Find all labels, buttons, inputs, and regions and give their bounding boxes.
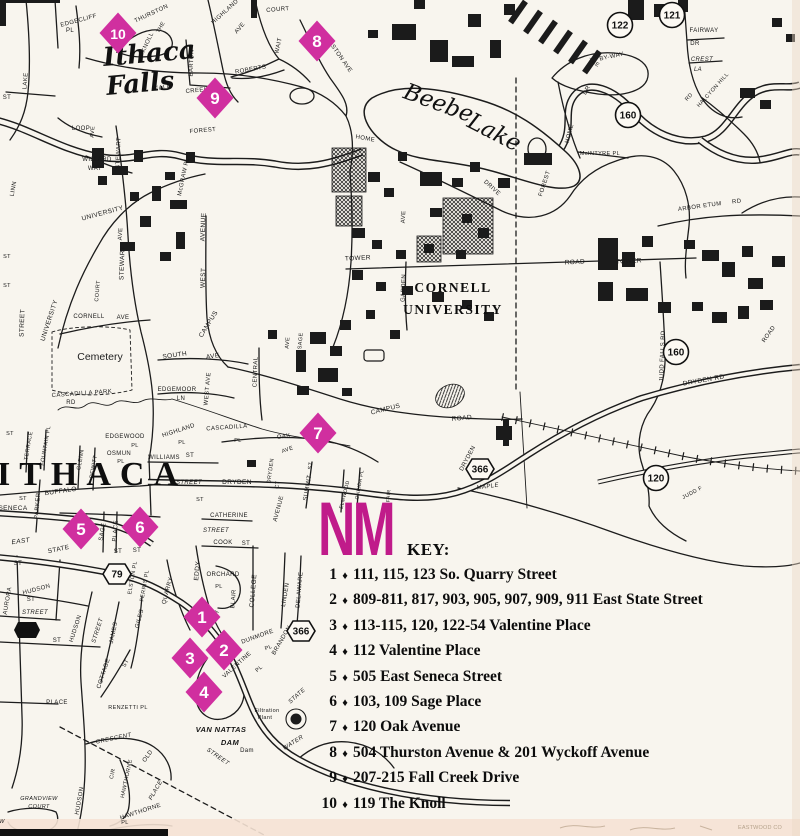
route-number: 366 <box>293 627 310 638</box>
street-label: ROAD <box>451 414 472 423</box>
street-label: PL <box>234 438 242 444</box>
route-number: 120 <box>648 474 665 485</box>
map-marker-3: 3 <box>172 638 209 679</box>
street-label: LINN <box>10 181 19 197</box>
street-label: ST <box>242 541 250 547</box>
street-label: VAN NATTAS <box>196 725 247 734</box>
street-label: CT <box>274 480 281 489</box>
marker-number: 3 <box>185 649 194 668</box>
street-label: AURORA <box>3 586 14 615</box>
street-label: AVE <box>118 227 124 240</box>
street-label: COURT <box>28 804 50 810</box>
street-label: CASCADILLA <box>206 424 248 433</box>
street-label: JUDD F <box>681 485 703 501</box>
street-label: DAM <box>221 738 240 747</box>
street-label: HOME <box>355 134 375 143</box>
street-label: LN <box>177 396 185 402</box>
place-labels-layer: IthacaFallsBeebeLakeCORNELLUNIVERSITYITH… <box>0 35 525 493</box>
street-label: TOWER <box>616 257 642 265</box>
scan-black-bar <box>0 829 168 836</box>
street-label: WAY <box>88 166 102 172</box>
street-label: STREET <box>203 528 230 534</box>
street-label: CIR <box>109 768 117 780</box>
street-label: CREST <box>691 57 714 63</box>
street-label: ST <box>6 431 14 437</box>
route-number: 121 <box>664 11 681 22</box>
street-label: AVENUE <box>273 495 286 522</box>
street-label: PLACE <box>148 779 164 801</box>
street-label: ST <box>186 453 194 459</box>
map-marker-4: 4 <box>186 672 223 713</box>
street-label: COLLEGE <box>249 574 259 608</box>
street-label: AVENUE <box>200 212 208 241</box>
street-label: COURT <box>94 280 102 302</box>
street-label: CORNELL <box>73 314 104 320</box>
route-shield: 160 <box>664 340 689 365</box>
street-label: GILES <box>135 608 146 629</box>
street-label: CAMPUS <box>370 402 401 416</box>
marker-number: 1 <box>197 608 206 627</box>
marker-number: 6 <box>135 518 144 537</box>
street-label: ST <box>196 497 204 503</box>
street-label: PL <box>66 28 74 34</box>
street-label: EDGEWOOD <box>105 434 145 440</box>
street-label: HIGHLAND <box>211 0 241 26</box>
street-label: RD <box>684 92 694 103</box>
street-label: PLACE <box>46 700 68 706</box>
street-label: AVE <box>90 126 97 138</box>
marker-number: 5 <box>76 520 85 539</box>
street-label: ROAD <box>565 258 586 266</box>
street-label: AVE <box>234 22 247 36</box>
street-label: ST <box>19 496 27 502</box>
map-marker-9: 9 <box>197 78 234 119</box>
route-shield: 79 <box>103 564 131 584</box>
street-label: GARDEN <box>401 274 408 302</box>
street-label: SENECA <box>0 505 28 512</box>
route-number: 122 <box>612 21 629 32</box>
street-label: STATE <box>288 687 308 706</box>
street-label: CRESCENT <box>95 732 133 746</box>
street-label: SAGE <box>297 332 304 349</box>
street-label: AVE <box>285 337 292 349</box>
marker-number: 8 <box>312 32 321 51</box>
street-label: OLD <box>142 749 155 764</box>
route-shield: 122 <box>608 13 633 38</box>
street-label: AVE <box>401 210 407 223</box>
street-label: GRANDVIEW <box>0 819 5 825</box>
street-label: ROAD <box>761 325 777 344</box>
street-label: STREET <box>19 309 27 337</box>
street-label: PLACE <box>112 520 120 542</box>
place-label: ITHACA <box>0 456 187 493</box>
street-label: BLAIR <box>230 589 238 609</box>
street-label: ST <box>14 561 22 567</box>
street-label: CASCADILLA PARK <box>52 389 113 399</box>
marker-number: 4 <box>199 683 209 702</box>
street-label: PL <box>255 665 265 674</box>
route-shield: 121 <box>660 3 685 28</box>
map-marker-7: 7 <box>300 413 337 454</box>
street-label: HAWTHORNE <box>119 803 161 822</box>
street-label: FAIRWAY <box>689 28 718 34</box>
street-label: WEST AVE <box>204 372 213 406</box>
street-label: PL <box>178 440 186 446</box>
street-label: HUDSON <box>22 583 51 596</box>
street-label: STATE <box>47 544 70 555</box>
street-label: UNIVERSITY <box>40 299 60 342</box>
street-label: McINTYRE PL <box>580 151 620 157</box>
street-label: ST <box>121 658 130 668</box>
route-number: 366 <box>472 465 489 476</box>
street-label: HIGHLAND <box>161 423 196 439</box>
place-label: UNIVERSITY <box>403 302 503 317</box>
street-label: PL <box>215 584 223 590</box>
route-shield: 120 <box>644 466 669 491</box>
street-label: OAK <box>277 433 292 441</box>
route-shield: 96B <box>14 622 40 638</box>
street-label: ST <box>27 597 35 603</box>
marker-number: 7 <box>313 424 322 443</box>
street-label: COURT <box>266 6 290 14</box>
street-label: THURSTON <box>134 4 170 25</box>
map-marker-8: 8 <box>299 21 336 62</box>
street-label: HUDSON <box>69 614 83 643</box>
street-label: COOK <box>213 540 232 546</box>
street-label: STREET <box>91 616 105 644</box>
street-label: GRANDVIEW <box>20 796 58 802</box>
street-label: AVE <box>281 445 294 455</box>
street-label: ST <box>3 283 11 289</box>
street-label: DUNMORE <box>241 628 275 645</box>
street-label: ELMWOOD <box>339 480 352 510</box>
street-label: LA <box>694 67 702 73</box>
ithaca-cornell-map: EDGECLIFFPLTHURSTONTHEKNOLLHIGHLANDAVECO… <box>0 0 800 836</box>
street-label: DRYDEN <box>222 479 252 486</box>
street-label: WILLARD <box>82 157 112 163</box>
street-label: PL <box>121 820 129 826</box>
street-label: PL <box>131 443 139 449</box>
place-label: Cemetery <box>77 351 123 363</box>
street-label: EDGEMOOR <box>158 387 197 393</box>
street-label: STREET <box>205 747 231 767</box>
marker-number: 2 <box>219 641 228 660</box>
street-label: Filtration <box>254 708 279 714</box>
street-label: ST <box>307 461 314 470</box>
street-label: FAIR <box>385 489 392 502</box>
street-label: EAST <box>11 537 31 547</box>
place-label: CORNELL <box>414 280 491 295</box>
street-label: HUDSON <box>75 786 86 815</box>
street-label: LOOP <box>72 126 90 132</box>
street-label: DRYDEN RD <box>682 373 725 387</box>
street-label: LINDEN <box>281 582 291 607</box>
marker-number: 9 <box>210 89 219 108</box>
street-label: WEST <box>200 268 208 289</box>
street-label: CAMPUS <box>198 309 220 339</box>
route-number: 160 <box>620 111 637 122</box>
route-number: 79 <box>111 570 123 581</box>
route-shield: 160 <box>616 103 641 128</box>
street-label: WATER <box>282 734 305 751</box>
street-label: CENTRAL <box>252 356 259 387</box>
street-label: DR <box>690 41 700 47</box>
street-label: ST <box>3 95 11 101</box>
street-label: WAIT <box>274 37 283 54</box>
street-label: RD <box>66 400 76 406</box>
street-label: DELAWARE <box>295 572 304 609</box>
street-label: JAMES <box>109 621 119 644</box>
street-label: UNIVERSITY <box>81 205 125 223</box>
street-label: HALCYON HILL <box>696 72 730 109</box>
street-label: ST <box>133 548 141 554</box>
street-label: ORCHARD <box>206 572 239 578</box>
street-label: Plant <box>258 715 273 721</box>
street-label: ST <box>3 254 11 260</box>
route-shield: 366 <box>287 621 315 641</box>
route-number: 160 <box>668 348 685 359</box>
street-label: McGRAW PL <box>177 157 191 197</box>
street-label: STEWART <box>115 137 122 169</box>
street-label: STEWART <box>118 246 126 280</box>
route-number: 96B <box>19 625 35 635</box>
scanned-map-page: EDGECLIFFPLTHURSTONTHEKNOLLHIGHLANDAVECO… <box>0 0 800 836</box>
marker-number: 10 <box>110 26 126 42</box>
street-label: FOREST <box>189 127 216 135</box>
street-label: Dam <box>240 748 254 754</box>
route-shield: 366 <box>466 459 494 479</box>
street-label: DRYDEN <box>266 458 275 484</box>
street-label: STREET <box>22 610 49 616</box>
street-label: RENZETTI PL <box>108 705 148 711</box>
place-label: Falls <box>104 66 176 102</box>
street-label: EDDY <box>193 561 202 581</box>
street-label: ST <box>114 549 122 555</box>
page-edge-right <box>792 0 800 836</box>
street-label: TOWER <box>345 254 371 262</box>
street-label: ROBERTS <box>235 64 267 75</box>
street-label: RD <box>732 198 742 205</box>
street-label: CATHERINE <box>210 513 248 519</box>
street-label: AVE <box>117 315 130 321</box>
street-label: ARBOR ETUM <box>678 201 722 213</box>
street-label: ST <box>53 638 61 644</box>
street-label: EASTWOOD CO <box>738 825 783 831</box>
